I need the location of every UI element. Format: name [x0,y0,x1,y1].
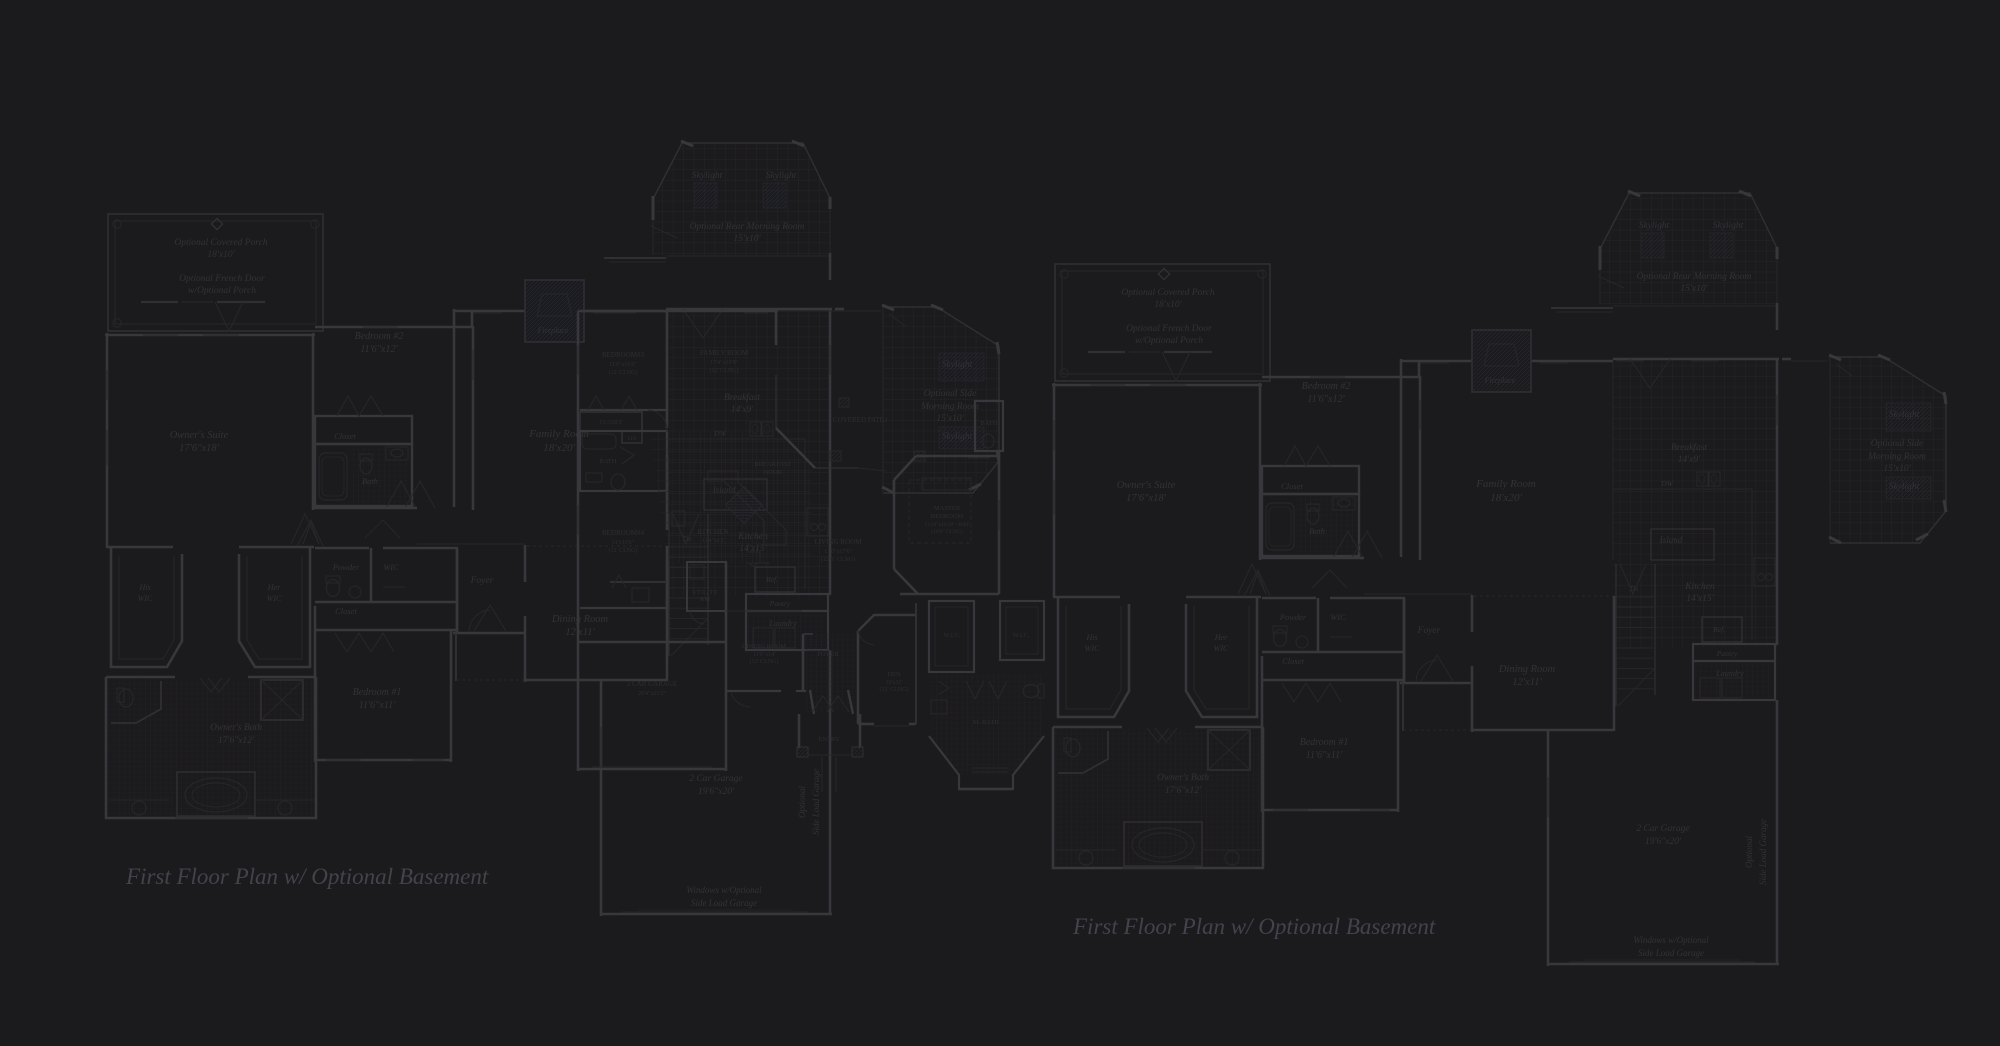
svg-text:11'6"x11'6": 11'6"x11'6" [609,362,637,368]
svg-text:11'x11'6": 11'x11'6" [612,540,635,546]
svg-text:FOYER: FOYER [817,651,839,658]
svg-text:BEDROOM: BEDROOM [931,513,964,520]
svg-text:CLOSET: CLOSET [600,420,623,426]
svg-text:(12' CLNG): (12' CLNG) [710,367,739,374]
svg-text:MASTER: MASTER [934,505,961,512]
svg-text:LIN: LIN [627,436,636,442]
svg-text:BATH: BATH [600,458,617,465]
svg-text:(12' CLNG): (12' CLNG) [609,369,638,376]
svg-text:LIVING ROOM: LIVING ROOM [815,538,863,546]
svg-text:(12'6" CLNG): (12'6" CLNG) [821,556,855,563]
svg-text:13'10"x16'10"+BAY: 13'10"x16'10"+BAY [924,522,969,528]
svg-text:17'4"x19'8": 17'4"x19'8" [710,360,739,366]
svg-text:W.I.C.: W.I.C. [1013,632,1030,639]
svg-text:ENTRY: ENTRY [818,736,840,743]
svg-text:10'x11': 10'x11' [886,680,903,686]
svg-text:FAMILY ROOM: FAMILY ROOM [700,349,749,357]
svg-text:KITCHEN: KITCHEN [698,528,729,536]
svg-text:COVERED PATIO: COVERED PATIO [833,416,887,424]
svg-text:11'4"x13': 11'4"x13' [702,538,724,544]
svg-text:NOOK: NOOK [764,469,783,476]
svg-text:DINING ROOM: DINING ROOM [742,643,786,650]
svg-text:11'6"x14': 11'6"x14' [753,652,775,658]
svg-text:W.I.C.: W.I.C. [944,632,961,639]
svg-text:BEDROOM#4: BEDROOM#4 [602,529,645,537]
svg-text:(12' CLNG): (12' CLNG) [609,547,638,554]
svg-text:20'4"x21'2": 20'4"x21'2" [638,691,667,697]
svg-text:RM: RM [700,596,710,603]
svg-text:(12' CLNG): (12' CLNG) [880,686,909,693]
svg-text:BEDROOM#3: BEDROOM#3 [602,351,645,359]
svg-text:2 CAR GARAGE: 2 CAR GARAGE [627,680,678,688]
svg-text:DEN: DEN [887,671,901,678]
svg-text:M. BATH: M. BATH [973,719,999,726]
svg-text:13'6"x17'6": 13'6"x17'6" [824,549,853,555]
svg-text:BATH: BATH [981,420,998,427]
svg-text:(12' CLNG): (12' CLNG) [750,658,779,665]
svg-text:UTILITY: UTILITY [692,589,718,596]
svg-text:BREAKFAST: BREAKFAST [754,461,791,468]
svg-text:(10'6" CLNG): (10'6" CLNG) [931,528,963,535]
